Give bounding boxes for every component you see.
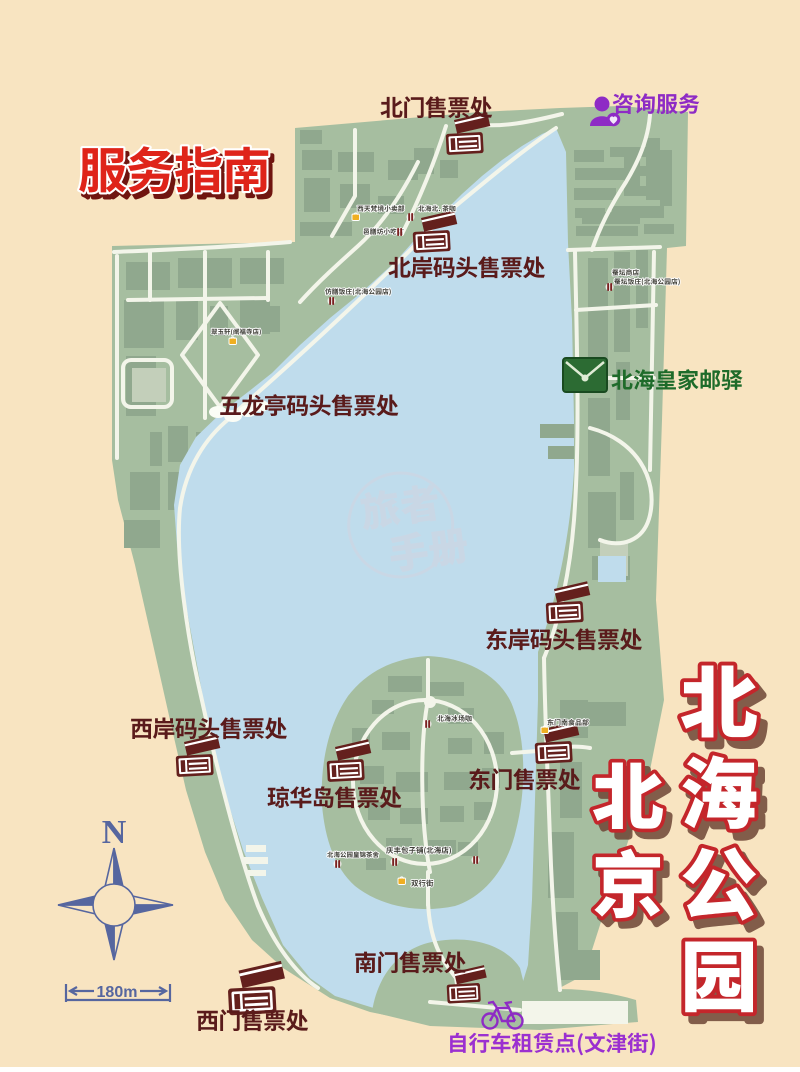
- svg-text:180m: 180m: [97, 984, 138, 1001]
- svg-text:N: N: [102, 814, 127, 851]
